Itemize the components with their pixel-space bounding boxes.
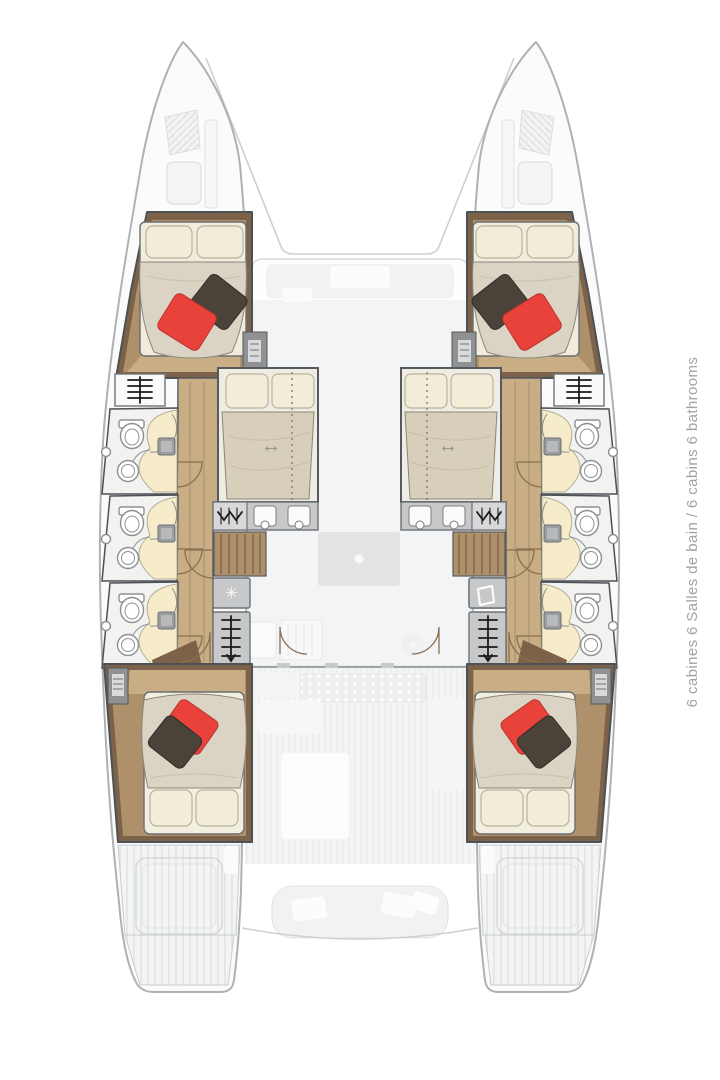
plan-caption: 6 cabines 6 Salles de bain / 6 cabins 6 … (684, 357, 701, 708)
bow-step (205, 120, 217, 208)
aft-companionway (213, 612, 250, 668)
head-platform (128, 670, 245, 694)
double-arrow-icon: ↔ (261, 435, 281, 457)
page: ✳ (0, 0, 720, 1080)
pillow (272, 374, 314, 408)
cabinet-vent (248, 340, 261, 362)
seat-knob (261, 521, 269, 529)
pillow (226, 374, 268, 408)
cockpit-sofa (258, 700, 322, 734)
hatch-box (213, 502, 247, 530)
cockpit-side-seat (252, 672, 296, 698)
foredeck-cushion (330, 266, 390, 288)
snowflake-icon: ✳ (408, 639, 418, 653)
cockpit-bench-dotted (300, 674, 426, 702)
galley-sink (250, 622, 276, 658)
cabinet-vent (112, 674, 124, 696)
pillow (197, 226, 243, 258)
foredeck-seating (266, 264, 454, 302)
forward-stairs (115, 374, 165, 406)
porthole (102, 448, 111, 457)
snowflake-icon: ✳ (225, 585, 238, 602)
shower-tray-inner (161, 441, 172, 452)
pillow (196, 790, 238, 826)
pillow (146, 226, 192, 258)
transom-step (224, 846, 238, 874)
cockpit-bench-right (428, 698, 472, 790)
bow-hatch (167, 162, 201, 204)
chart-table-panel (469, 578, 506, 608)
pillow (150, 790, 192, 826)
cockpit-table (280, 752, 350, 840)
hull-steps (214, 532, 266, 576)
aft-cabin (104, 664, 252, 842)
transom (118, 845, 240, 985)
sink (118, 461, 139, 482)
foredeck-cushion-small (282, 288, 312, 302)
swim-steps (125, 935, 234, 985)
anchor-hatch (165, 110, 200, 155)
catamaran-floorplan: ✳ (0, 0, 720, 1080)
aft-bench-cushion (291, 896, 328, 923)
cockpit (242, 668, 478, 939)
fridge-panel: ✳ (213, 578, 250, 608)
seat-knob (295, 521, 303, 529)
center-cabin: ↔ (213, 368, 318, 530)
galley-sink-dot (355, 555, 364, 564)
